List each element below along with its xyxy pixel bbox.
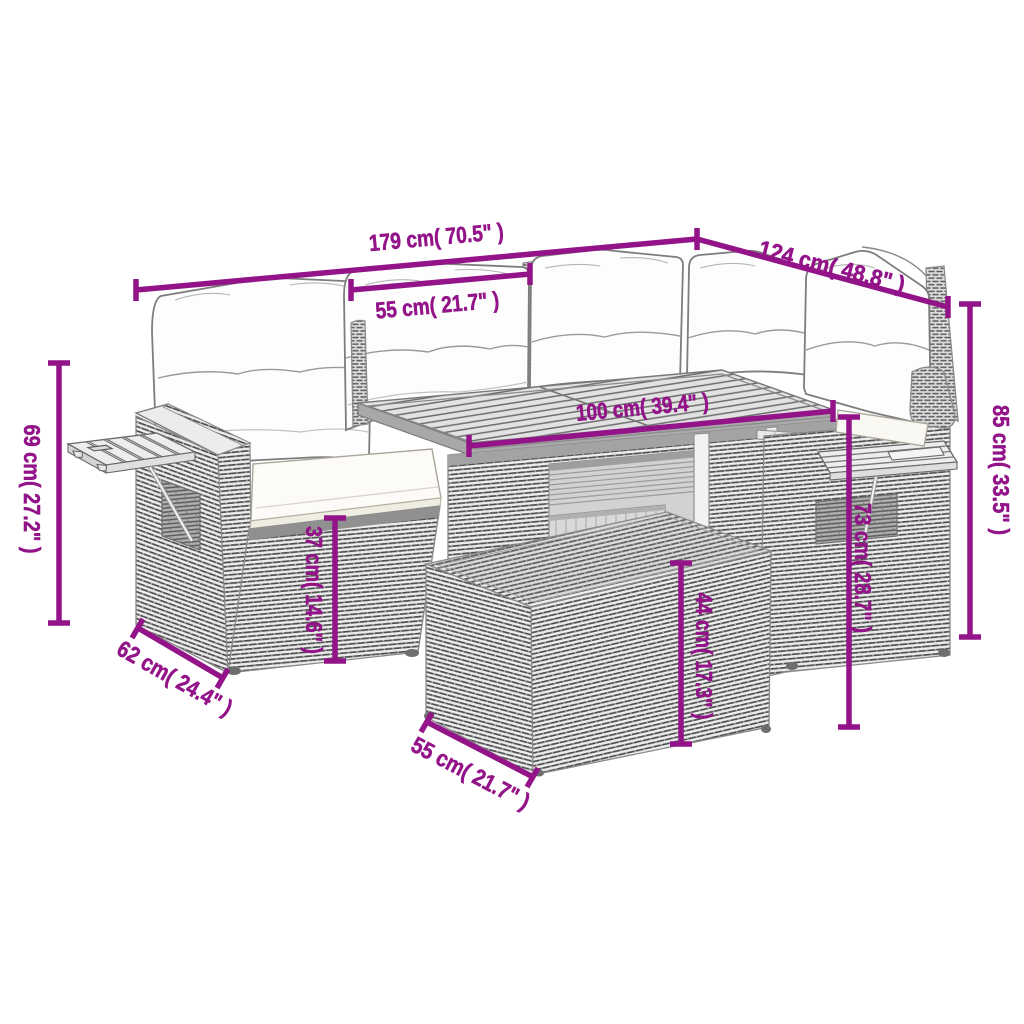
svg-text:73 cm( 28.7" ): 73 cm( 28.7" ) [850,503,876,633]
svg-text:69 cm( 27.2" ): 69 cm( 27.2" ) [19,425,45,554]
svg-text:44 cm( 17.3" ): 44 cm( 17.3" ) [691,593,717,720]
svg-text:85 cm( 33.5" ): 85 cm( 33.5" ) [988,405,1014,535]
svg-text:37 cm( 14.6" ): 37 cm( 14.6" ) [301,526,327,654]
